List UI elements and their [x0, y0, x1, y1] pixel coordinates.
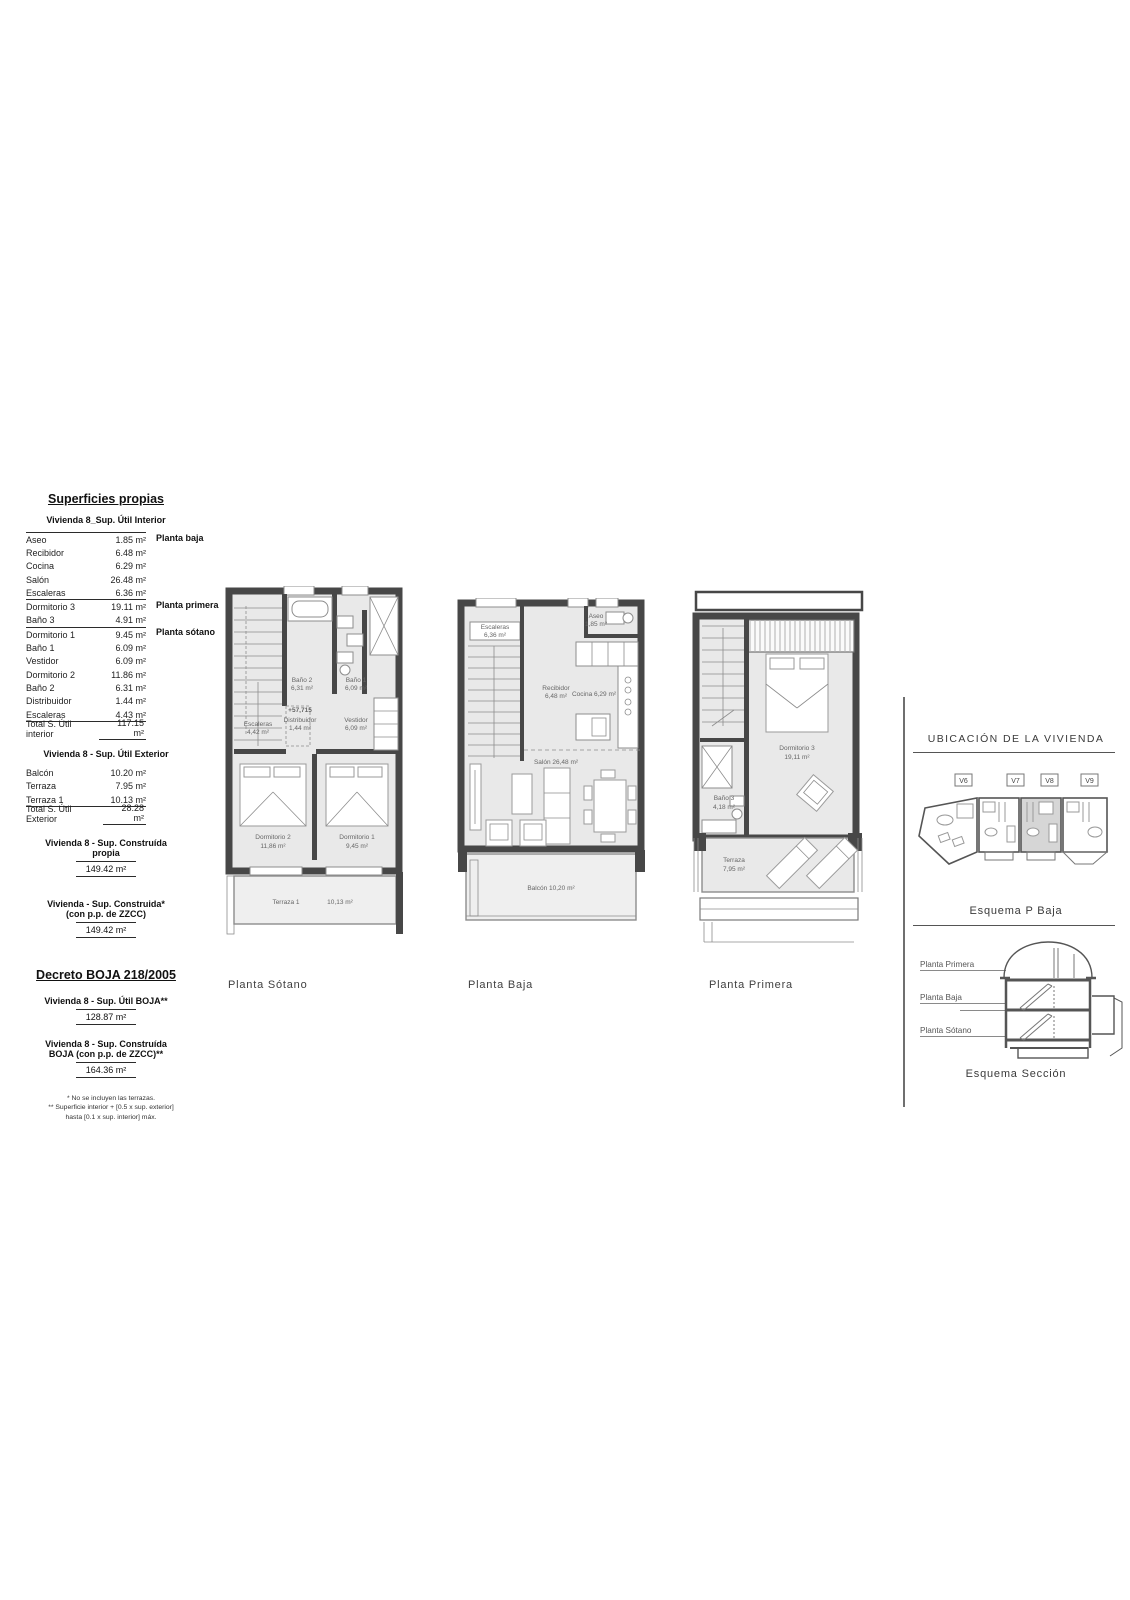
room-label: Aseo	[589, 613, 604, 620]
row-label: Salón	[26, 575, 49, 585]
table-row: Baño 34.91 m²	[26, 614, 146, 627]
row-value: 6.31 m²	[115, 683, 146, 693]
attic-detail	[1054, 948, 1074, 978]
ubicacion-title: UBICACIÓN DE LA VIVIENDA	[918, 733, 1114, 745]
table-row: Cocina6.29 m²	[26, 560, 146, 573]
row-value: 6.09 m²	[115, 656, 146, 666]
room-label: Salón 26,48 m²	[534, 759, 579, 766]
row-label: Cocina	[26, 561, 54, 571]
exterior-subtitle: Vivienda 8 - Sup. Útil Exterior	[26, 749, 186, 759]
unit-v7-outline	[979, 798, 1019, 860]
row-value: 1.44 m²	[115, 696, 146, 706]
roof-arc	[1004, 942, 1092, 978]
interior-subtitle: Vivienda 8_Sup. Útil Interior	[26, 515, 186, 525]
floorplan-sotano: Baño 2 6,31 m² Baño 1 6,09 m² Escaleras …	[224, 586, 410, 938]
plan-caption-baja: Planta Baja	[468, 979, 533, 991]
total-label: Total S. Útil interior	[26, 719, 99, 739]
pbaja-underline	[913, 925, 1115, 926]
table-row: Balcón10.20 m²	[26, 766, 146, 779]
room-label: Baño 2	[292, 677, 313, 684]
window-icon	[476, 598, 516, 607]
plan-caption-primera: Planta Primera	[709, 979, 793, 991]
row-value: 6.48 m²	[115, 548, 146, 558]
bed-icon	[326, 764, 388, 826]
room-area-label: 6,36 m²	[484, 632, 507, 639]
room-label: Dormitorio 2	[255, 834, 291, 841]
util-boja-value: 128.87 m²	[76, 1009, 137, 1025]
row-label: Recibidor	[26, 548, 64, 558]
room-area-label: 9,45 m²	[346, 843, 369, 850]
row-value: 6.09 m²	[115, 643, 146, 653]
footnotes: * No se incluyen las terrazas. ** Superf…	[26, 1094, 196, 1124]
construida-zzcc-line1: Vivienda - Sup. Construida*	[26, 899, 186, 909]
room-label: Escaleras	[481, 624, 510, 631]
wall	[234, 749, 286, 754]
construida-propia-value: 149.42 m²	[76, 861, 137, 877]
decreto-title: Decreto BOJA 218/2005	[26, 968, 186, 982]
table-row: Aseo1.85 m²	[26, 532, 146, 546]
coffee-table-icon	[512, 774, 532, 814]
footnote-2a: ** Superficie interior + [0.5 x sup. ext…	[26, 1103, 196, 1113]
row-label: Distribuidor	[26, 696, 72, 706]
tv-sideboard-icon	[470, 764, 481, 830]
room-label: Terraza 1	[272, 899, 299, 906]
row-value: 6.29 m²	[115, 561, 146, 571]
construida-boja-value: 164.36 m²	[76, 1062, 137, 1078]
shower-icon	[702, 746, 732, 788]
table-row: Dormitorio 319.11 m²	[26, 599, 146, 613]
terrace-outline	[694, 833, 862, 892]
row-value: 9.45 m²	[115, 630, 146, 640]
row-label: Balcón	[26, 768, 54, 778]
section-label-sotano: Planta Sótano	[920, 1026, 1006, 1037]
armchair-icon	[486, 820, 512, 846]
side-label-planta-baja: Planta baja	[156, 533, 231, 543]
room-label: Distribuidor	[284, 717, 318, 724]
row-label: Dormitorio 2	[26, 670, 75, 680]
interior-total-row: Total S. Útil interior117.15 m²	[26, 721, 146, 735]
room-area-label: 6,09 m²	[345, 685, 368, 692]
room-area-label: 19,11 m²	[784, 754, 810, 761]
unit-tags: V6 V7 V8 V9	[955, 774, 1098, 786]
util-boja-line1: Vivienda 8 - Sup. Útil BOJA**	[26, 996, 186, 1006]
plan-caption-sotano: Planta Sótano	[228, 979, 308, 991]
row-label: Terraza	[26, 781, 56, 791]
drawing-sheet: Superficies propias Vivienda 8_Sup. Útil…	[0, 0, 1130, 1600]
sofa-icon	[544, 768, 570, 844]
sink-icon	[702, 820, 736, 833]
row-value: 1.85 m²	[115, 535, 146, 545]
section-label-baja: Planta Baja	[920, 993, 1006, 1004]
room-label: Baño 3	[714, 795, 735, 802]
room-area-label: 10,13 m²	[327, 899, 353, 906]
unit-v8-outline-highlighted	[1021, 798, 1061, 860]
room-label: Escaleras	[244, 721, 273, 728]
row-value: 7.95 m²	[115, 781, 146, 791]
wall	[312, 754, 317, 860]
row-value: 11.86 m²	[111, 670, 146, 680]
row-value: 26.48 m²	[110, 575, 146, 585]
footnote-2b: hasta [0.1 x sup. interior] máx.	[26, 1113, 196, 1123]
window-icon	[596, 598, 618, 607]
room-label: Cocina 6,29 m²	[572, 691, 617, 698]
row-label: Escaleras	[26, 588, 66, 598]
unit-v9-outline	[1063, 798, 1107, 864]
esquema-seccion-caption: Esquema Sección	[918, 1068, 1114, 1080]
stair-flight-icon	[1020, 984, 1054, 1040]
room-area-label: 7,95 m²	[723, 866, 746, 873]
room-label: Balcón 10,20 m²	[527, 885, 575, 892]
surfaces-title: Superficies propias	[26, 492, 186, 506]
annex-outline	[1092, 996, 1114, 1034]
window-icon	[568, 598, 588, 607]
room-area-label: 6,09 m²	[345, 725, 368, 732]
exterior-table: Balcón10.20 m² Terraza7.95 m² Terraza 11…	[26, 766, 146, 820]
window-icon	[284, 586, 314, 595]
construida-propia-block: Vivienda 8 - Sup. Construída propia 149.…	[26, 838, 186, 877]
table-row: Vestidor6.09 m²	[26, 655, 146, 668]
unit-location-diagram: V6 V7 V8 V9	[915, 768, 1120, 888]
wardrobe-icon	[374, 698, 398, 750]
row-value: 6.36 m²	[115, 588, 146, 598]
construida-propia-line1: Vivienda 8 - Sup. Construída	[26, 838, 186, 848]
row-label: Vestidor	[26, 656, 59, 666]
surfaces-panel: Superficies propias Vivienda 8_Sup. Útil…	[26, 492, 216, 1123]
construida-boja-line1: Vivienda 8 - Sup. Construída	[26, 1039, 186, 1049]
construida-zzcc-block: Vivienda - Sup. Construida* (con p.p. de…	[26, 899, 186, 938]
bed-icon	[766, 654, 828, 732]
construida-boja-block: Vivienda 8 - Sup. Construída BOJA (con p…	[26, 1039, 186, 1078]
armchair-icon	[520, 820, 546, 846]
level-mark: +57,715	[288, 707, 312, 714]
interior-table: Aseo1.85 m² Recibidor6.48 m² Cocina6.29 …	[26, 532, 146, 735]
table-row: Distribuidor1.44 m²	[26, 695, 146, 708]
vertical-divider	[903, 697, 905, 1107]
row-label: Aseo	[26, 535, 47, 545]
row-value: 10.20 m²	[110, 768, 146, 778]
total-value: 117.15 m²	[99, 718, 146, 740]
util-boja-block: Vivienda 8 - Sup. Útil BOJA** 128.87 m²	[26, 996, 186, 1025]
table-row: Recibidor6.48 m²	[26, 546, 146, 559]
shower-icon	[370, 597, 398, 655]
row-label: Baño 3	[26, 615, 55, 625]
lower-roof-edge	[700, 898, 858, 942]
room-area-label: 4,42 m²	[247, 729, 270, 736]
row-value: 19.11 m²	[111, 602, 146, 612]
terrace-outline	[227, 872, 403, 934]
terrain-line	[1110, 998, 1122, 1056]
wall	[332, 594, 337, 694]
total-label: Total S. Útil Exterior	[26, 804, 103, 824]
unit-tag-v7: V7	[1011, 778, 1020, 785]
row-value: 4.91 m²	[115, 615, 146, 625]
table-row: Baño 16.09 m²	[26, 641, 146, 654]
room-area-label: 1,44 m²	[289, 725, 312, 732]
table-row: Baño 26.31 m²	[26, 681, 146, 694]
table-row: Terraza7.95 m²	[26, 780, 146, 793]
construida-propia-line2: propia	[26, 848, 186, 858]
construida-zzcc-line2: (con p.p. de ZZCC)	[26, 909, 186, 919]
table-row: Dormitorio 19.45 m²	[26, 627, 146, 641]
roof-hatch	[746, 620, 854, 652]
ubicacion-underline	[913, 752, 1115, 753]
roof-edge	[696, 592, 862, 610]
room-label: Baño 1	[346, 677, 367, 684]
footnote-1: * No se incluyen las terrazas.	[26, 1094, 196, 1104]
section-diagram	[996, 938, 1126, 1064]
wall	[282, 594, 287, 706]
side-label-planta-primera: Planta primera	[156, 600, 231, 610]
unit-tag-v6: V6	[959, 778, 968, 785]
room-area-label: 6,31 m²	[291, 685, 314, 692]
unit-tag-v8: V8	[1045, 778, 1054, 785]
construida-boja-line2: BOJA (con p.p. de ZZCC)**	[26, 1049, 186, 1059]
exterior-total-row: Total S. Útil Exterior28.28 m²	[26, 806, 146, 820]
table-row: Salón26.48 m²	[26, 573, 146, 586]
section-label-primera: Planta Primera	[920, 960, 1006, 971]
floorplan-baja: Escaleras 6,36 m² Recibidor 6,48 m² Aseo…	[456, 598, 652, 934]
window-icon	[342, 586, 368, 595]
row-label: Baño 1	[26, 643, 55, 653]
unit-v6-outline	[919, 798, 977, 864]
construida-zzcc-value: 149.42 m²	[76, 922, 137, 938]
side-label-planta-sotano: Planta sótano	[156, 627, 231, 637]
window-icon	[250, 867, 302, 875]
room-label: Vestidor	[344, 717, 368, 724]
plinth	[1018, 1048, 1088, 1058]
room-area-label: 1,85 m²	[585, 621, 608, 628]
table-row: Escaleras6.36 m²	[26, 586, 146, 599]
room-area-label: 4,18 m²	[713, 804, 736, 811]
row-label: Baño 2	[26, 683, 55, 693]
unit-tag-v9: V9	[1085, 778, 1094, 785]
window-icon	[326, 867, 382, 875]
bathtub-icon	[288, 597, 332, 621]
row-label: Dormitorio 3	[26, 602, 75, 612]
room-label: Dormitorio 3	[779, 745, 815, 752]
bed-icon	[240, 764, 306, 826]
esquema-pbaja-caption: Esquema P Baja	[918, 905, 1114, 917]
room-area-label: 6,48 m²	[545, 693, 568, 700]
room-label: Dormitorio 1	[339, 834, 375, 841]
row-label: Dormitorio 1	[26, 630, 75, 640]
room-label: Recibidor	[542, 685, 570, 692]
room-label: Terraza	[723, 857, 745, 864]
table-row: Dormitorio 211.86 m²	[26, 668, 146, 681]
floorplan-primera: Dormitorio 3 19,11 m² Baño 3 4,18 m² Ter…	[690, 588, 880, 944]
room-area-label: 11,86 m²	[260, 843, 286, 850]
total-value: 28.28 m²	[103, 803, 146, 825]
